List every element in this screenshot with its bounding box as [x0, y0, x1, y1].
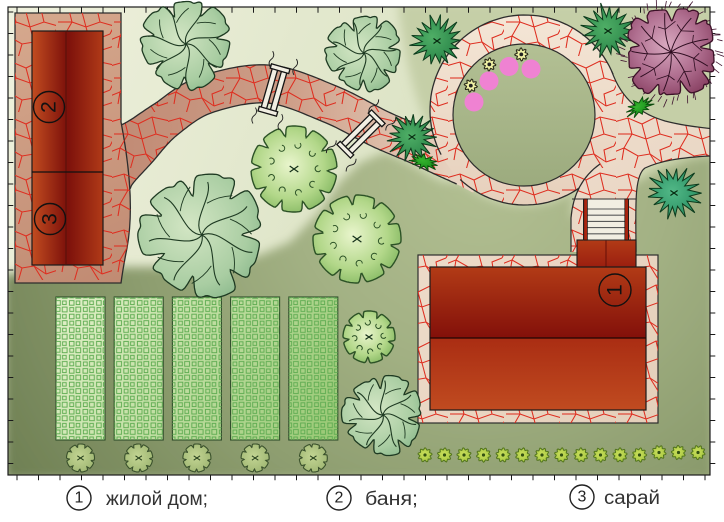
svg-text:баня;: баня; — [365, 489, 418, 510]
svg-text:жилой дом;: жилой дом; — [106, 489, 208, 510]
svg-text:3: 3 — [578, 489, 587, 506]
svg-text:2: 2 — [38, 101, 61, 113]
svg-text:сарай: сарай — [604, 488, 660, 509]
svg-text:2: 2 — [335, 490, 344, 507]
svg-text:1: 1 — [75, 490, 84, 507]
svg-text:3: 3 — [39, 213, 62, 225]
svg-text:1: 1 — [604, 284, 627, 296]
